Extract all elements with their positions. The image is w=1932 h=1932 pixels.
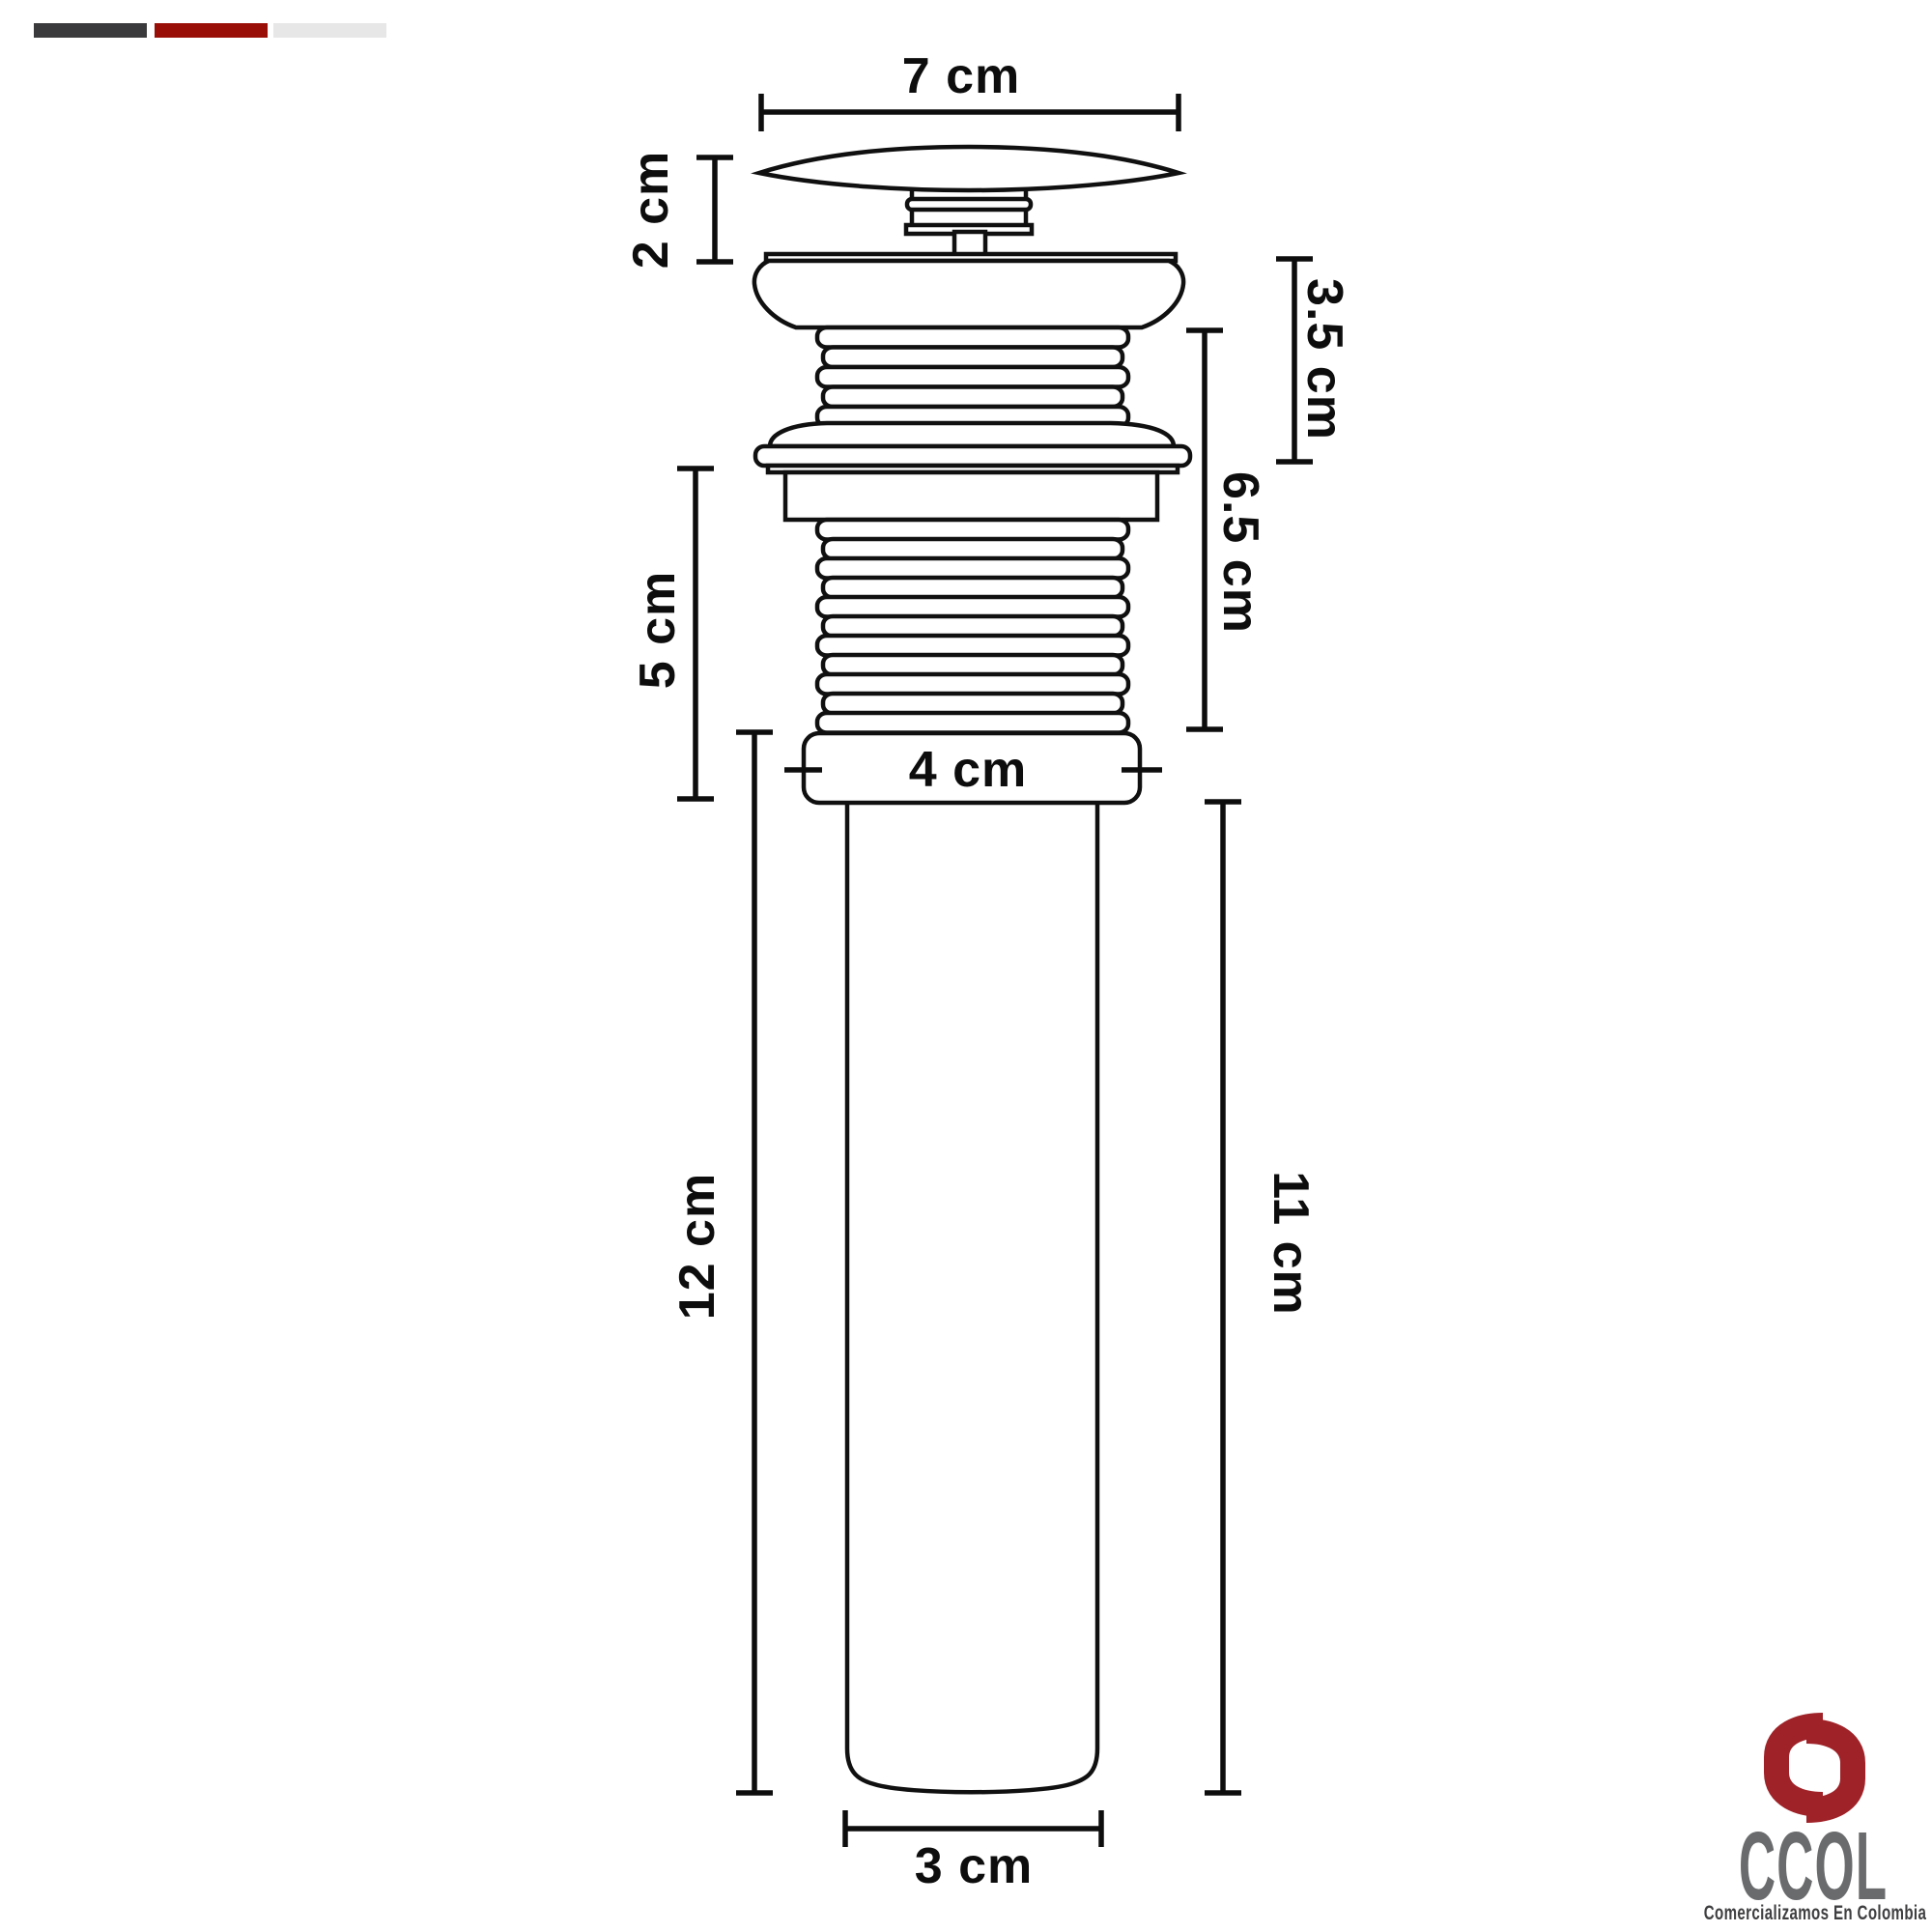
drain-drawing (754, 147, 1190, 1792)
lower-threads (817, 520, 1128, 733)
label-tailpipe-diameter: 3 cm (915, 1838, 1034, 1894)
thread-rib (817, 597, 1128, 617)
thread-rib (817, 636, 1128, 656)
thread-rib (823, 578, 1122, 598)
thread-rib (823, 655, 1122, 675)
thread-rib (817, 713, 1128, 733)
flange-dome (770, 423, 1174, 446)
ccol-tagline: Comercializamos En Colombia (1704, 1900, 1927, 1923)
label-tailpipe-length-left: 12 cm (669, 1173, 725, 1320)
body-bowl (754, 261, 1183, 327)
thread-rib (823, 616, 1122, 637)
label-cap-diameter: 7 cm (902, 48, 1021, 104)
ccol-logo: CCOL Comercializamos En Colombia (1704, 1725, 1927, 1924)
label-collar-width: 4 cm (909, 742, 1028, 798)
dim-line-11cm (1205, 802, 1241, 1793)
thread-rib (817, 327, 1128, 348)
thread-rib (817, 674, 1128, 695)
label-tailpipe-length-right: 11 cm (1263, 1171, 1319, 1316)
thread-rib (823, 387, 1122, 408)
thread-rib (817, 558, 1128, 579)
dim-line-12cm (736, 732, 773, 1793)
drain-dimension-diagram: 7 cm 2 cm 3.5 cm 6.5 cm 5 cm 4 cm 12 cm … (0, 0, 1932, 1932)
label-body-to-collar-height: 6.5 cm (1212, 471, 1268, 634)
monogram-right-c (1806, 1731, 1853, 1810)
upper-threads (817, 327, 1128, 427)
thread-rib (823, 539, 1122, 559)
thread-rib (823, 348, 1122, 368)
ccol-monogram (1776, 1725, 1853, 1810)
tailpipe (847, 803, 1097, 1792)
cap-lens (759, 147, 1179, 190)
thread-rib (817, 367, 1128, 387)
label-upper-body-height: 3.5 cm (1296, 278, 1352, 440)
label-lower-thread-height: 5 cm (630, 571, 686, 690)
thread-rib (823, 694, 1122, 714)
thread-rib (817, 520, 1128, 540)
label-cap-height: 2 cm (623, 151, 679, 270)
flange-ring (755, 446, 1190, 466)
cap-stem-ring (907, 199, 1031, 210)
locking-nut (785, 472, 1157, 520)
dim-line-2cm (696, 157, 733, 262)
